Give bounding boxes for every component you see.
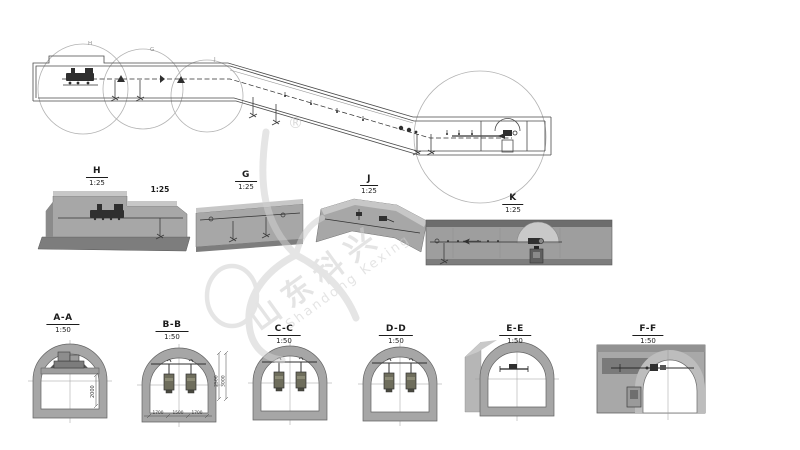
cross-section-ff — [597, 345, 705, 420]
label-section-bb-scale: 1:50 — [156, 332, 189, 341]
dim-aa-height: 2000 — [90, 385, 96, 398]
callout-circles — [38, 44, 546, 203]
cross-section-ee — [465, 338, 559, 421]
conveyor-centerline — [62, 79, 512, 138]
line-markers — [117, 75, 517, 139]
dim-bb-right-inner: 2500 — [214, 375, 220, 387]
label-plan-scale-note: 1:25 — [151, 185, 170, 194]
cross-section-cc — [248, 342, 332, 425]
callout-label-h: H — [88, 41, 92, 47]
plan-hangers — [111, 80, 435, 155]
label-section-ff: F-F 1:50 — [632, 325, 663, 345]
tunnel-outline — [33, 56, 551, 155]
label-detail-h-scale: 1:25 — [86, 178, 108, 187]
label-section-bb: B-B 1:50 — [156, 321, 189, 341]
cad-drawing: H G J — [0, 0, 800, 450]
label-section-ee-scale: 1:50 — [499, 336, 531, 345]
label-detail-k-id: K — [502, 194, 523, 205]
label-section-aa-scale: 1:50 — [46, 325, 79, 334]
detail-section-g — [196, 199, 303, 252]
plan-view: H G J — [33, 41, 551, 203]
dim-bb-bottom-2: 1500 — [173, 410, 184, 416]
detail-section-j — [316, 199, 427, 252]
label-section-cc: C-C 1:50 — [268, 325, 301, 345]
label-detail-j-id: J — [360, 175, 378, 186]
label-section-bb-id: B-B — [156, 321, 189, 332]
label-section-ff-scale: 1:50 — [632, 336, 663, 345]
label-detail-k: K 1:25 — [502, 194, 523, 214]
cross-section-bb: 2500 3000 1700 1500 1700 — [137, 344, 228, 427]
dim-bb-right-outer: 3000 — [221, 375, 227, 387]
label-section-ee: E-E 1:50 — [499, 325, 531, 345]
cross-section-dd — [358, 343, 442, 426]
label-detail-g: G 1:25 — [235, 171, 257, 191]
label-detail-h-id: H — [86, 167, 108, 178]
label-section-ee-id: E-E — [499, 325, 531, 336]
detail-section-h — [38, 191, 190, 251]
label-section-aa-id: A-A — [46, 314, 79, 325]
label-section-aa: A-A 1:50 — [46, 314, 79, 334]
label-detail-k-scale: 1:25 — [502, 205, 523, 214]
cross-section-aa: 2000 — [28, 340, 112, 423]
callout-label-j: J — [213, 57, 216, 63]
label-section-cc-id: C-C — [268, 325, 301, 336]
label-detail-h: H 1:25 — [86, 167, 108, 187]
label-detail-j: J 1:25 — [360, 175, 378, 195]
callout-label-g: G — [150, 47, 154, 53]
label-section-cc-scale: 1:50 — [268, 336, 301, 345]
label-section-dd: D-D 1:50 — [379, 325, 413, 345]
drawing-sheet: H G J — [0, 0, 800, 450]
machine-plan-glyph — [63, 68, 98, 85]
label-section-dd-scale: 1:50 — [379, 336, 413, 345]
label-detail-g-scale: 1:25 — [235, 182, 257, 191]
label-detail-j-scale: 1:25 — [360, 186, 378, 195]
dim-bb-bottom-3: 1700 — [192, 410, 203, 416]
dim-bb-bottom-1: 1700 — [153, 410, 164, 416]
label-section-dd-id: D-D — [379, 325, 413, 336]
label-section-ff-id: F-F — [632, 325, 663, 336]
label-detail-g-id: G — [235, 171, 257, 182]
detail-section-k — [426, 220, 612, 265]
